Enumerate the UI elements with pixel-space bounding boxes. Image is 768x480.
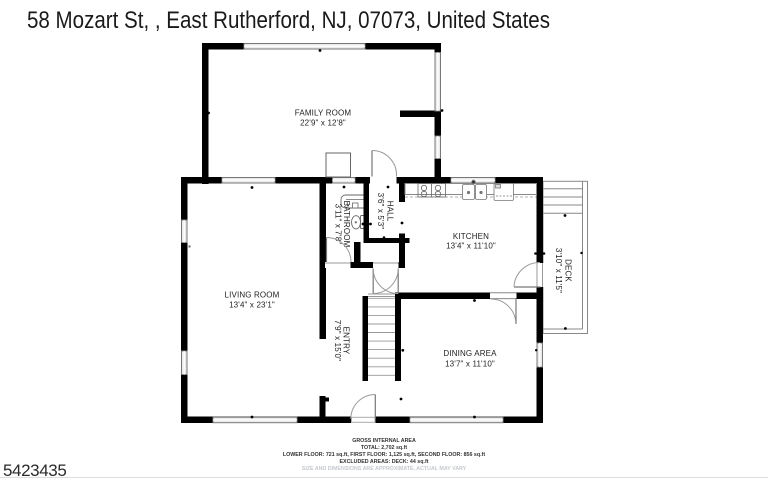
svg-text:HALL: HALL [386, 201, 395, 222]
svg-text:13'7" x 11'10": 13'7" x 11'10" [445, 360, 495, 369]
svg-text:3'10" x 11'5": 3'10" x 11'5" [554, 248, 563, 293]
svg-text:13'4" x 23'1": 13'4" x 23'1" [229, 301, 275, 310]
svg-text:22'9" x 12'8": 22'9" x 12'8" [300, 119, 346, 128]
svg-text:DECK: DECK [564, 259, 573, 282]
svg-text:13'4" x 11'10": 13'4" x 11'10" [446, 241, 496, 250]
svg-text:DINING AREA: DINING AREA [443, 349, 497, 358]
svg-text:LIVING ROOM: LIVING ROOM [225, 291, 280, 300]
svg-text:FAMILY ROOM: FAMILY ROOM [295, 109, 352, 118]
svg-text:7'9" x 15'0": 7'9" x 15'0" [333, 320, 342, 361]
svg-text:3'6" x 5'3": 3'6" x 5'3" [376, 193, 385, 230]
svg-text:3'11" x 7'8": 3'11" x 7'8" [334, 204, 343, 245]
svg-text:KITCHEN: KITCHEN [453, 232, 489, 241]
